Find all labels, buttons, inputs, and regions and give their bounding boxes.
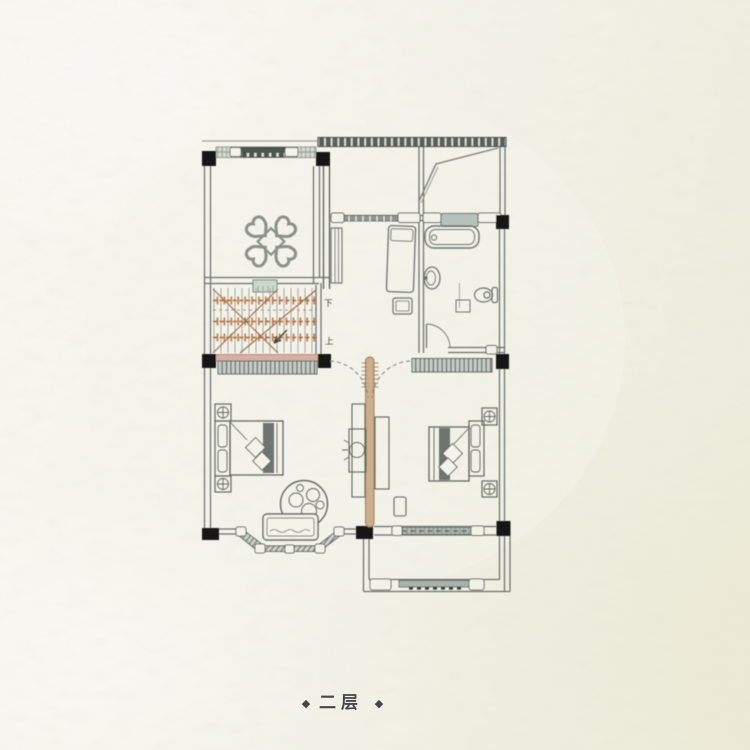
svg-text:◆: ◆: [302, 698, 311, 710]
svg-text:上: 上: [325, 336, 334, 346]
svg-text:下: 下: [324, 298, 333, 308]
svg-text:◆: ◆: [375, 698, 384, 710]
svg-text:二层: 二层: [319, 693, 363, 712]
